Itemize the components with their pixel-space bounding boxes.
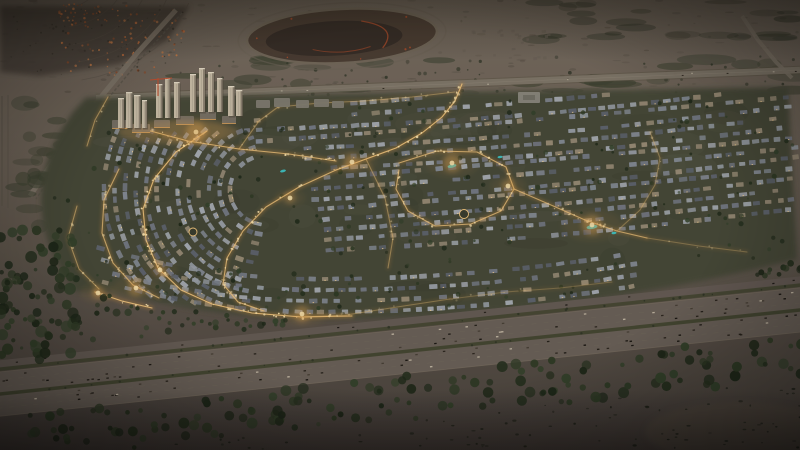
aerial-community-photo <box>0 0 800 450</box>
vignette-overlay <box>0 0 800 450</box>
aerial-render-stage <box>0 0 800 450</box>
